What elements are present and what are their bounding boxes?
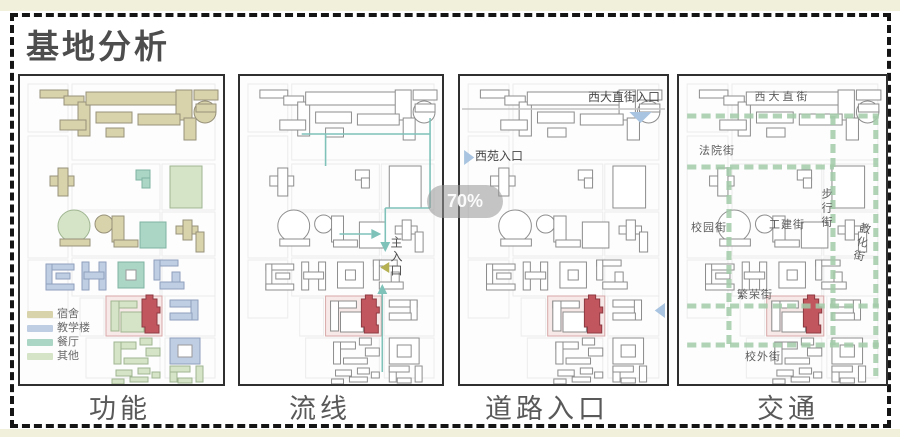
xidazhi-entrance-label: 西大直街入口 [588, 88, 660, 105]
legend-label-dining: 餐厅 [57, 336, 79, 349]
street-label-xidazhi: 西大直街 [679, 88, 886, 104]
legend-label-teaching: 教学楼 [57, 322, 90, 335]
panel-traffic: 西大直街 法院街 校园街 工建街 步行街 教化街 繁荣街 校外街 [677, 74, 888, 386]
legend-item-dining: 餐厅 [27, 336, 90, 349]
street-label-buxing: 步行街 [818, 188, 834, 230]
street-label-gongjian: 工建街 [769, 216, 805, 232]
slide: 基地分析 宿舍 教学楼 餐厅 其他 主入口 [0, 0, 900, 437]
street-label-fayuan: 法院街 [699, 142, 735, 158]
panel-road-entrances: 西大直街入口 西苑入口 [458, 74, 669, 386]
panel-circulation: 主入口 [238, 74, 444, 386]
road-entrance-map [460, 76, 667, 384]
legend-label-other: 其他 [57, 350, 79, 363]
circulation-map [240, 76, 442, 384]
panel-caption-road-entrances: 道路入口 [468, 387, 626, 419]
panel-caption-function: 功能 [55, 387, 185, 419]
legend-swatch-dining [27, 339, 53, 346]
panel-caption-traffic: 交通 [723, 387, 853, 419]
legend-swatch-other [27, 353, 53, 360]
street-label-fanrong: 繁荣街 [737, 286, 773, 302]
street-label-xiaowai: 校外街 [745, 348, 781, 364]
legend-item-teaching: 教学楼 [27, 322, 90, 335]
main-entrance-label: 主入口 [388, 236, 405, 278]
legend-item-other: 其他 [27, 350, 90, 363]
panel-function: 宿舍 教学楼 餐厅 其他 [18, 74, 225, 386]
legend: 宿舍 教学楼 餐厅 其他 [27, 308, 90, 363]
bottom-edge-strip [0, 429, 900, 437]
page-title: 基地分析 [26, 20, 170, 68]
panel-caption-circulation: 流线 [255, 387, 385, 419]
street-label-xiaoyuan: 校园街 [691, 219, 727, 235]
legend-swatch-dorm [27, 311, 53, 318]
top-edge-strip [0, 0, 900, 11]
zoom-level-badge: 70% [427, 185, 503, 218]
xiyuan-entrance-label: 西苑入口 [475, 147, 523, 164]
legend-item-dorm: 宿舍 [27, 308, 90, 321]
legend-label-dorm: 宿舍 [57, 308, 79, 321]
legend-swatch-teaching [27, 325, 53, 332]
